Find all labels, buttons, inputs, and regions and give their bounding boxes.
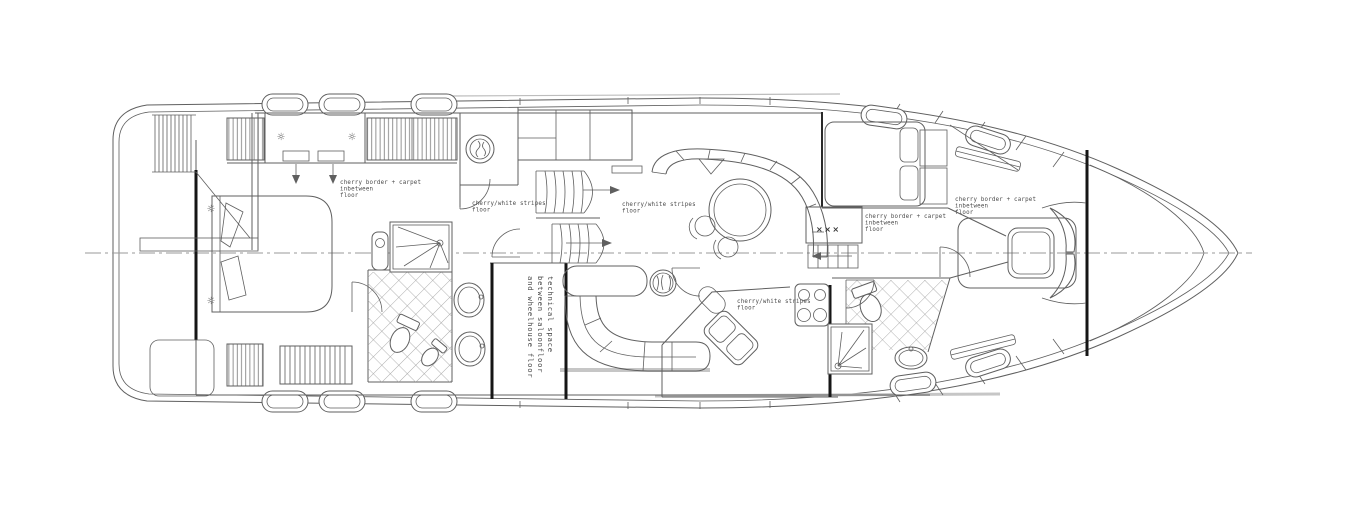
label-saloon-floor: cherry/white stripes floor: [622, 202, 696, 215]
shower: [828, 324, 872, 374]
pillow: [900, 128, 918, 162]
drawer: [283, 151, 309, 161]
deck-plan-svg: technical space between saloonfloor and …: [0, 0, 1350, 506]
porthole: [262, 94, 308, 115]
shower: [390, 222, 452, 272]
porthole: [963, 346, 1013, 379]
label-aft-cabin-floor: cherry border + carpet inbetween floor: [340, 180, 421, 199]
stove: [795, 284, 829, 326]
porthole: [262, 391, 308, 412]
wardrobe: [227, 118, 264, 160]
pillow: [221, 256, 246, 300]
porthole: [319, 94, 365, 115]
technical-space: technical space between saloonfloor and …: [526, 276, 555, 379]
svg-text:floor: floor: [737, 306, 756, 312]
entry-steps: [808, 245, 858, 268]
wardrobe: [227, 344, 263, 386]
svg-text:floor: floor: [622, 209, 641, 215]
closet: [920, 130, 947, 166]
porthole: [963, 123, 1013, 156]
technical-space-label: technical space: [546, 276, 555, 353]
porthole: [319, 391, 365, 412]
closet: [920, 168, 947, 204]
ceiling-light-icon: ☼: [277, 132, 286, 143]
stern-seat: [150, 340, 214, 396]
cabinetry: [518, 110, 642, 173]
porthole: [860, 104, 908, 130]
label-corridor-floor: cherry/white stripes floor: [472, 201, 546, 214]
guest-bathroom: [828, 280, 948, 374]
ceiling-light-icon: ☼: [207, 204, 216, 215]
twin-sinks: [454, 283, 485, 366]
galley: [672, 268, 829, 368]
sink: [895, 347, 927, 369]
sideboard: [612, 166, 642, 173]
svg-text:cherry border + carpet: cherry border + carpet: [340, 180, 421, 186]
svg-text:inbetween: inbetween: [340, 187, 373, 193]
stairs-upper: [536, 171, 620, 213]
vent-cabinet: ×××: [806, 207, 862, 243]
svg-text:floor: floor: [955, 210, 974, 216]
porthole: [411, 94, 457, 115]
svg-text:floor: floor: [472, 208, 491, 214]
dinette-table: [709, 179, 771, 241]
chaise: [563, 266, 647, 296]
svg-text:cherry/white stripes: cherry/white stripes: [737, 299, 811, 305]
ceiling-light-icon: ☼: [207, 296, 216, 307]
owner-bathroom: [352, 222, 485, 382]
vent-marks: ×××: [816, 225, 841, 234]
svg-text:cherry/white stripes: cherry/white stripes: [472, 201, 546, 207]
chair: [689, 216, 715, 239]
pillow: [900, 166, 918, 200]
svg-text:floor: floor: [340, 193, 359, 199]
ceiling-light-icon: ☼: [348, 132, 357, 143]
porthole: [411, 391, 457, 412]
svg-text:cherry border + carpet: cherry border + carpet: [865, 214, 946, 220]
svg-text:inbetween: inbetween: [955, 204, 988, 210]
louver-dresser: [280, 346, 352, 384]
svg-text:cherry/white stripes: cherry/white stripes: [622, 202, 696, 208]
svg-text:inbetween: inbetween: [865, 221, 898, 227]
drainer: [695, 283, 729, 317]
svg-text:and wheelhouse floor: and wheelhouse floor: [526, 276, 535, 379]
floor-medallion: [650, 270, 676, 296]
label-guest-cabin-floor: cherry border + carpet inbetween floor: [865, 214, 946, 233]
saloon-sofa: [563, 266, 710, 371]
svg-text:between saloonfloor: between saloonfloor: [536, 276, 545, 373]
door-swing: [940, 247, 970, 277]
label-forward-cabin-floor: cherry border + carpet inbetween floor: [955, 197, 1036, 216]
yacht-deck-plan: technical space between saloonfloor and …: [0, 0, 1350, 506]
vanity-stool: [372, 232, 388, 270]
laundry-closet: [466, 135, 494, 163]
svg-text:cherry border + carpet: cherry border + carpet: [955, 197, 1036, 203]
washing-machine: [466, 135, 494, 163]
guest-bed: [825, 122, 925, 206]
table-corner: [699, 159, 724, 174]
svg-text:floor: floor: [865, 227, 884, 233]
drawer: [318, 151, 344, 161]
